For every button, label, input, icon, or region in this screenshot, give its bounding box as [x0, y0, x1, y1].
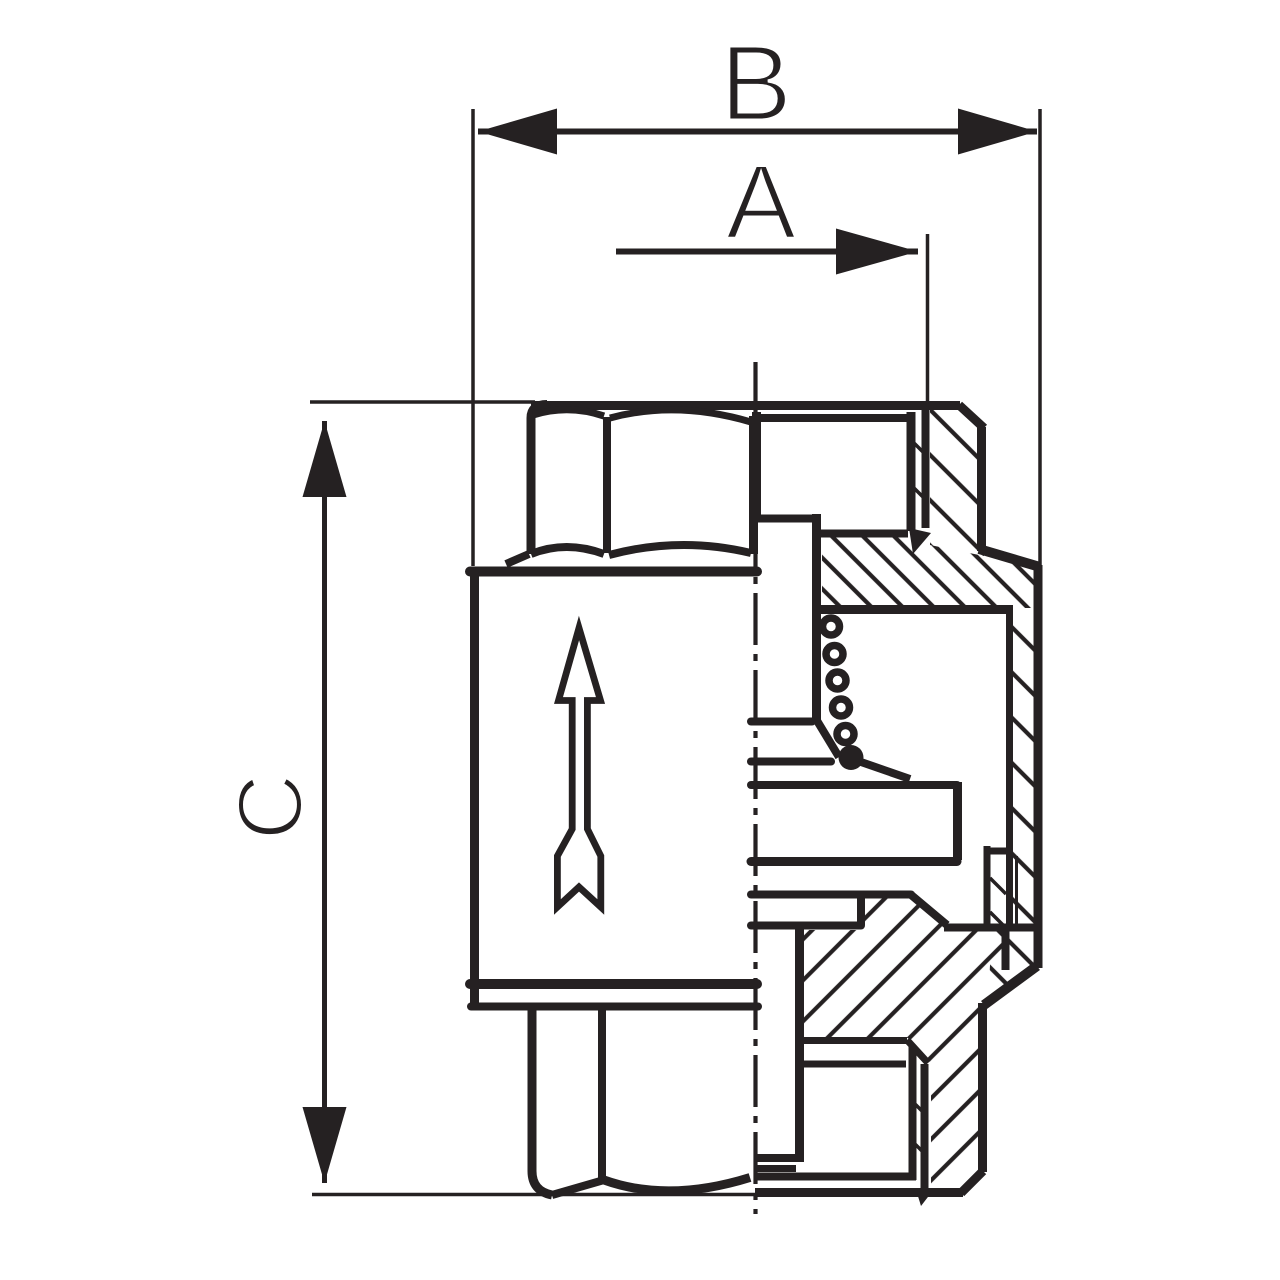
svg-text:B: B	[720, 22, 792, 143]
svg-text:C: C	[220, 774, 322, 840]
svg-text:A: A	[726, 144, 797, 262]
